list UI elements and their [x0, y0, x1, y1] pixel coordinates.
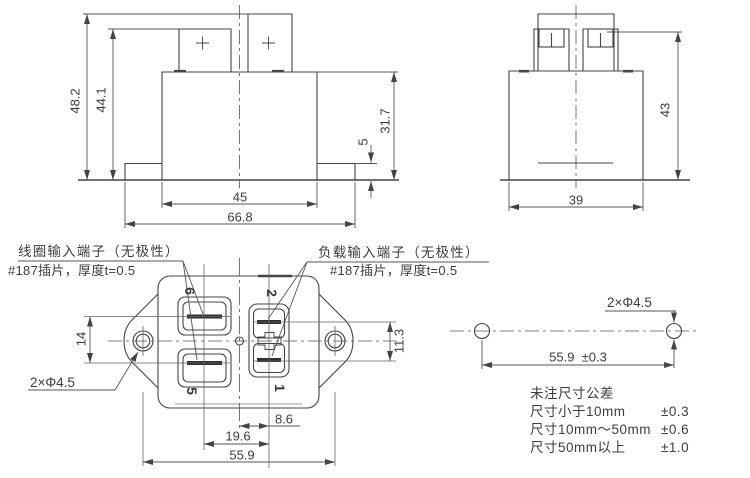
mounting-view [450, 324, 700, 339]
relay-dimension-drawing [0, 0, 750, 478]
drill-hole-note: 2×Φ4.5 [607, 296, 652, 310]
terminal-number-2: 2 [265, 289, 279, 297]
dim-label-center-to-load: 8.6 [275, 413, 293, 426]
engineering-drawing-canvas: 48.2 44.1 31.7 5 45 66.8 43 39 线圈输入端子（无极… [0, 0, 750, 478]
front-terminal-cross-marks [196, 37, 275, 50]
tolerance-row-1-range: 尺寸小于10mm [530, 405, 626, 419]
tolerance-row-2-value: ±0.6 [661, 423, 689, 437]
side-view-dimensions [509, 32, 682, 211]
tolerance-row-1-value: ±0.3 [661, 405, 689, 419]
dim-label-flange-thickness: 5 [357, 138, 370, 145]
dim-label-drill-span: 55.9 ±0.3 [549, 351, 607, 364]
dim-label-total-height: 48.2 [69, 88, 82, 113]
dim-label-side-height: 43 [659, 103, 672, 117]
coil-terminal-label: 线圈输入端子（无极性） [18, 245, 180, 259]
dim-label-hole-span: 55.9 [229, 449, 254, 462]
dim-label-body-width: 45 [233, 191, 247, 204]
load-terminal-spec: #187插片，厚度t=0.5 [330, 264, 457, 277]
bottom-hole-note: 2×Φ4.5 [30, 376, 75, 390]
dim-label-load-pitch: 11.3 [393, 329, 406, 353]
bottom-view-outline [124, 276, 353, 408]
dim-label-body-height: 31.7 [379, 108, 392, 133]
side-view-outline [500, 14, 690, 180]
dim-label-coil-pitch: 14 [75, 332, 88, 346]
tolerance-row-2-range: 尺寸10mm～50mm [530, 423, 651, 437]
dim-label-flange-width: 66.8 [227, 211, 252, 224]
front-terminal-left [179, 29, 231, 72]
terminal-5-inner [183, 354, 226, 382]
tolerance-row-3-range: 尺寸50mm以上 [530, 441, 626, 455]
terminal-number-1: 1 [273, 384, 287, 392]
tolerance-table-title: 未注尺寸公差 [530, 387, 614, 401]
hole-note-leader [115, 352, 138, 390]
coil-terminal-spec: #187插片，厚度t=0.5 [8, 264, 135, 277]
terminal-number-5: 5 [185, 387, 199, 395]
bottom-view-centerlines [108, 258, 398, 432]
terminal-number-6: 6 [183, 287, 197, 295]
bottom-view-blades [187, 317, 281, 364]
front-view-outline [78, 14, 399, 180]
dim-label-coil-to-load: 19.6 [225, 430, 250, 443]
dim-label-terminal-height: 44.1 [95, 87, 108, 112]
front-flange [125, 164, 355, 181]
load-terminal-label: 负载输入端子（无极性） [318, 246, 480, 260]
tolerance-row-3-value: ±1.0 [661, 441, 689, 455]
dim-label-side-width: 39 [569, 194, 583, 207]
